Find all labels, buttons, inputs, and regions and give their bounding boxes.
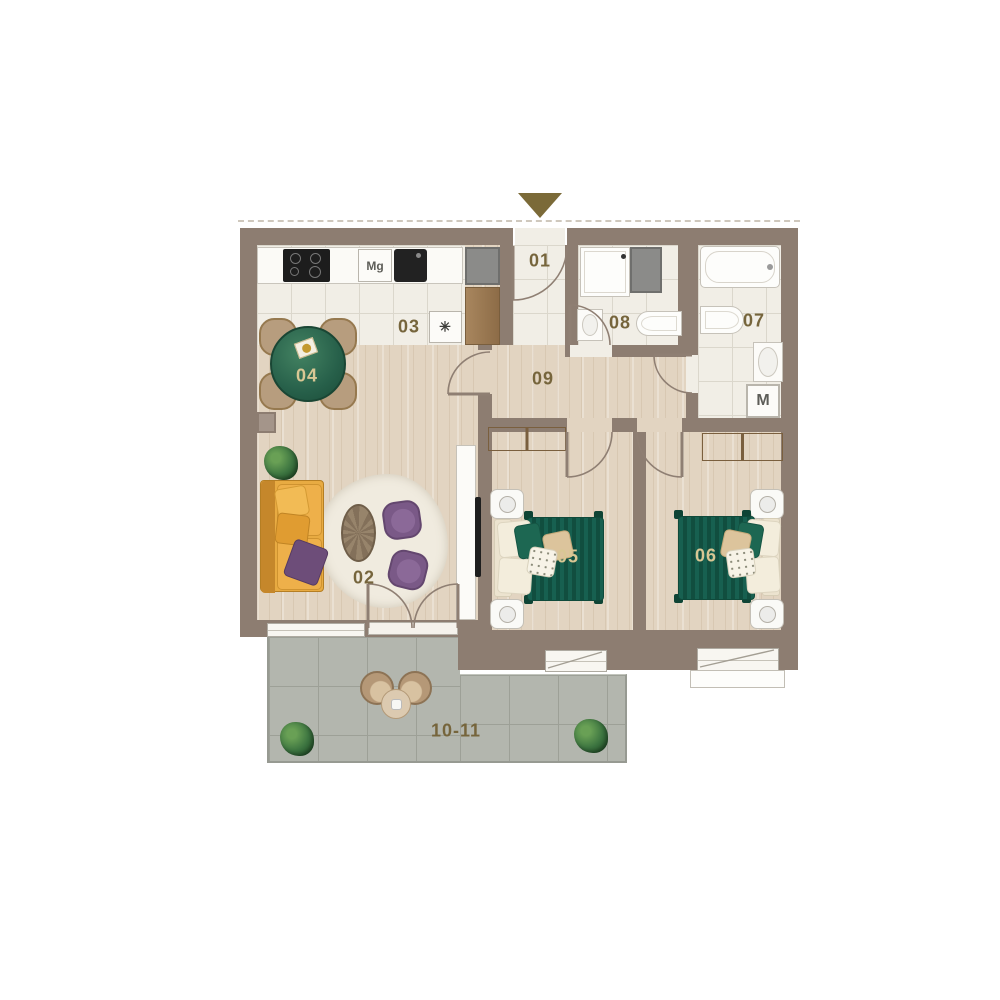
entrance-arrow-icon (518, 193, 562, 218)
tray-item (301, 343, 313, 355)
tv-console (456, 445, 476, 620)
utility-shaft-bath (630, 247, 662, 293)
bedroom1-window (545, 650, 607, 672)
burner (310, 253, 321, 264)
burner (290, 253, 301, 264)
washing-machine-label: M (756, 392, 769, 410)
kitchen-sink (394, 249, 427, 282)
entry-door-opening (513, 228, 567, 245)
toilet-room-door-opening (570, 345, 612, 357)
wall-entry-left (500, 245, 513, 345)
bed-pillow-dotted (526, 546, 558, 578)
room-label-entry: 01 (529, 251, 551, 272)
toilet (700, 306, 744, 334)
room-label-living: 02 (353, 568, 375, 589)
room-label-bedroom2: 06 (695, 546, 717, 567)
nightstand (490, 599, 524, 629)
burner (290, 267, 299, 276)
room-label-dining: 04 (296, 366, 318, 387)
plant (574, 719, 608, 753)
washbasin (753, 342, 783, 382)
room-label-toilet: 08 (609, 313, 631, 334)
coffee-table (341, 504, 376, 562)
dining-table (270, 326, 346, 402)
balcony-door-threshold (368, 622, 458, 635)
shower (580, 247, 630, 297)
living-room-window (267, 623, 365, 637)
armchair (381, 499, 424, 542)
wall-pillar (257, 412, 276, 433)
nightstand (750, 489, 784, 519)
utility-shaft-kitchen (465, 247, 500, 285)
table-kettle (391, 699, 402, 710)
bathtub (700, 246, 780, 288)
balcony-table (381, 689, 411, 719)
bathtub-faucet (767, 264, 773, 270)
bedroom2-wardrobe (702, 433, 783, 461)
overhang-dashed-line (238, 220, 800, 222)
bedroom1-door-opening (567, 418, 612, 432)
cooktop (283, 249, 330, 282)
bedroom2-window (697, 648, 779, 672)
nightstand (750, 599, 784, 629)
bed-pillow-dotted (725, 547, 757, 579)
shower-tray (584, 251, 626, 293)
bathroom-door-opening (686, 355, 698, 393)
shower-drain (621, 254, 626, 259)
plant (280, 722, 314, 756)
wall-between-bedrooms (633, 432, 646, 630)
burner (309, 266, 321, 278)
wall-left (240, 228, 257, 637)
room-label-kitchen: 03 (398, 317, 420, 338)
floor-plan-canvas: Mg ✳ M (0, 0, 1000, 1000)
bathtub-inner (705, 251, 775, 283)
bedroom2-window-sill (690, 670, 785, 688)
room-label-balcony: 10-11 (431, 721, 481, 742)
entry-cabinet (465, 287, 500, 345)
toilet (636, 311, 682, 336)
room-label-hallway: 09 (532, 369, 554, 390)
nightstand (490, 489, 524, 519)
armchair-seat (390, 507, 417, 534)
room-label-bathroom: 07 (743, 311, 765, 332)
faucet (416, 253, 421, 258)
plant (264, 446, 298, 480)
room-label-bedroom1: 05 (557, 547, 579, 568)
bedroom2-door-opening (637, 418, 682, 432)
bedroom1-wardrobe (488, 427, 566, 451)
dishwasher-label: ✳ (439, 319, 451, 336)
living-door-opening (478, 350, 492, 394)
armchair-seat (394, 557, 423, 586)
tv (475, 497, 481, 577)
washbasin (577, 309, 603, 341)
sofa-back (261, 481, 275, 593)
microwave-label: Mg (366, 259, 383, 273)
